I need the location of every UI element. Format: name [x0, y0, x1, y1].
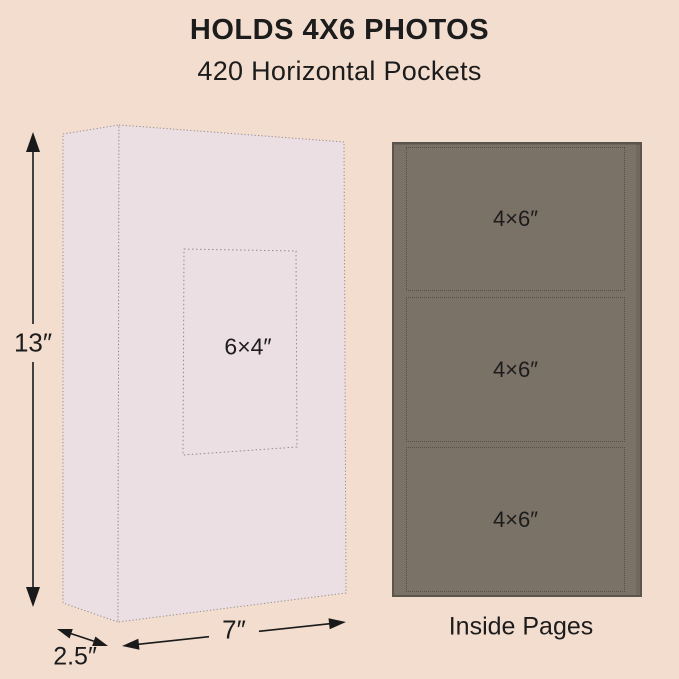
width-dimension-label: 7″: [222, 615, 246, 646]
cover-window-label: 6×4″: [224, 334, 271, 361]
pocket-size-label: 4×6″: [493, 357, 538, 383]
inside-pages-caption: Inside Pages: [449, 613, 594, 642]
arrowhead-up-icon: [26, 132, 40, 152]
arrowhead-upleft-icon: [57, 629, 73, 639]
photo-pocket: 4×6″: [406, 447, 625, 592]
height-dimension-arrow: [26, 132, 40, 607]
height-dimension-label: 13″: [14, 328, 52, 359]
album-spine-face: [63, 125, 119, 622]
album-front-face: [118, 125, 346, 622]
inside-page-panel: 4×6″ 4×6″ 4×6″: [392, 142, 642, 597]
arrowhead-right-icon: [329, 618, 347, 629]
pocket-size-label: 4×6″: [493, 206, 538, 232]
photo-pocket: 4×6″: [406, 297, 625, 442]
arrowhead-left-icon: [122, 639, 140, 650]
product-diagram: HOLDS 4X6 PHOTOS 420 Horizontal Pockets: [0, 0, 679, 679]
pocket-size-label: 4×6″: [493, 507, 538, 533]
arrowhead-down-icon: [26, 587, 40, 607]
photo-pocket: 4×6″: [406, 147, 625, 291]
depth-dimension-label: 2.5″: [53, 643, 97, 672]
